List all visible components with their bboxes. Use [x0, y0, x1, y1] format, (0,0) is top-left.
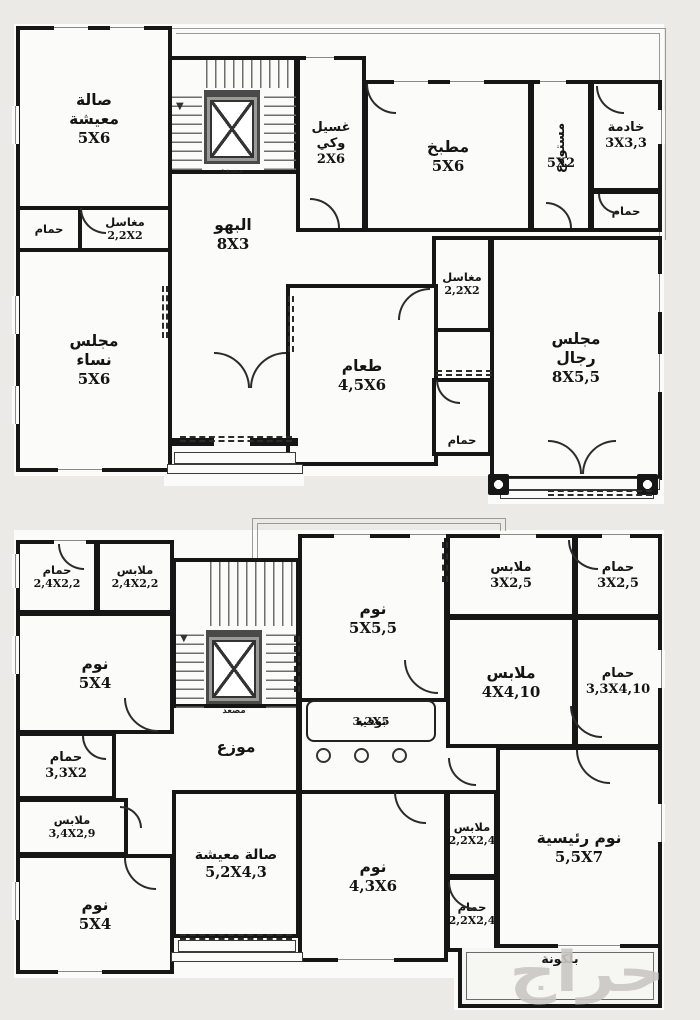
window: [602, 531, 630, 538]
bedroom-2-dims: 5X4: [79, 916, 112, 933]
hall-women-opening: [162, 286, 168, 338]
closet-d-dims: 4X4,10: [482, 684, 541, 701]
living-room-2-dims: 5,2X4,3: [205, 865, 267, 881]
window: [12, 882, 19, 920]
hall-porch-step: [167, 464, 303, 474]
window: [12, 296, 19, 334]
window: [658, 650, 665, 688]
buffet-dims: 3,2X5: [353, 714, 390, 728]
men-majlis-dims: 8X5,5: [552, 369, 600, 386]
bathroom-e-dims: 2,2X2,4: [449, 915, 496, 927]
buffet-wall: [296, 700, 302, 792]
men-majlis: مجلس رجال8X5,5: [490, 236, 662, 480]
bathroom-1-label: حمام: [35, 222, 64, 236]
window: [12, 386, 19, 424]
lobby-hall-label: البهو: [214, 216, 251, 235]
elevator-shaft: [206, 630, 262, 704]
living-room-label: صالة معيشة: [69, 91, 119, 129]
women-majlis: مجلس نساء5X6: [16, 248, 172, 472]
bathroom-b-label: حمام: [50, 750, 83, 766]
porch-step: [178, 940, 296, 952]
stair-treads: [206, 60, 294, 88]
closet-e-dims: 2,2X2,4: [449, 835, 496, 847]
buffet-counter: بوفيه3,2X5: [306, 700, 436, 742]
men-threshold: [548, 490, 652, 496]
closet-c-opening: [442, 542, 448, 582]
stair-treads: [210, 562, 296, 626]
balcony-window: [558, 942, 620, 949]
window: [54, 24, 88, 31]
porch-step: [171, 952, 303, 962]
bedroom-3-label: نوم: [360, 600, 387, 619]
living-room: صالة معيشة5X6: [16, 26, 172, 212]
bathroom-a-label: حمام: [43, 563, 72, 577]
bedroom-1-label: نوم: [82, 655, 109, 674]
closet-c-label: ملابس: [490, 560, 531, 576]
washbasins-2-label: مغاسل: [442, 270, 482, 284]
bedroom-3-dims: 5X5,5: [349, 620, 397, 637]
closet-e: ملابس2,2X2,4: [446, 790, 498, 878]
living-room-2-label: صالة معيشة: [195, 847, 277, 864]
washbasins-2-dims: 2,2X2: [444, 285, 479, 297]
elevator-icon: [212, 640, 256, 698]
entry-post: [488, 474, 509, 495]
bathroom-d-dims: 3,3X4,10: [586, 683, 650, 697]
closet-c-dims: 3X2,5: [490, 577, 532, 591]
maid-room-label: خادمة: [608, 120, 645, 136]
window: [394, 78, 428, 85]
women-majlis-label: مجلس نساء: [70, 332, 119, 370]
washbasins-1-dims: 2,2X2: [107, 230, 142, 242]
hall-dining-opening: [288, 296, 294, 352]
stair-treads: [266, 630, 296, 708]
floor-plan-image: حراج صالة معيشة5X6حماممغاسل2,2X2مجلس نسا…: [0, 0, 700, 1020]
bathroom-a: حمام2,4X2,2: [16, 540, 98, 614]
women-majlis-dims: 5X6: [78, 371, 111, 388]
maid-room-dims: 3X3,3: [605, 137, 647, 151]
window: [12, 106, 19, 144]
bathroom-2-label: حمام: [448, 433, 477, 447]
window: [658, 804, 665, 842]
window: [658, 110, 665, 144]
kitchen-dims: 5X6: [432, 158, 465, 175]
closet-b-label: ملابس: [54, 813, 90, 827]
stair-direction-arrow-icon: ▼: [176, 102, 184, 112]
elevator-label: مصعد: [204, 166, 260, 178]
buffet-stool: [354, 748, 369, 763]
window: [450, 78, 484, 85]
window: [334, 531, 370, 538]
living-2-threshold: [180, 934, 292, 940]
window: [410, 531, 446, 538]
dining-room-dims: 4,5X6: [338, 377, 386, 394]
buffet-stool: [316, 748, 331, 763]
bathroom-d-label: حمام: [602, 666, 635, 682]
distributor-opening: [294, 636, 300, 692]
balcony-label: بلكونة: [541, 951, 578, 966]
hall-porch-step: [174, 452, 296, 464]
storage-label: مستودع: [553, 123, 569, 173]
bedroom-4-label: نوم: [360, 858, 387, 877]
stair-direction-arrow-icon: ▼: [180, 634, 188, 644]
bedroom-2-label: نوم: [82, 896, 109, 915]
window: [306, 54, 334, 61]
closet-e-label: ملابس: [454, 820, 490, 834]
kitchen-label: مطبخ: [427, 138, 469, 157]
window: [338, 956, 394, 963]
bathroom-a-dims: 2,4X2,2: [34, 578, 81, 590]
men-majlis-label: مجلس رجال: [552, 330, 601, 368]
stair-treads: [264, 90, 296, 170]
lobby-hall: البهو8X3: [168, 172, 298, 444]
lobby-hall-dims: 8X3: [217, 236, 250, 253]
distributor-hall-label: موزع: [217, 738, 256, 757]
balcony: بلكونة: [458, 948, 662, 1008]
men-porch-step: [494, 478, 660, 490]
bathroom-1: حمام: [16, 206, 82, 252]
window: [12, 554, 19, 588]
bedroom-4-dims: 4,3X6: [349, 878, 397, 895]
washbasins-2: مغاسل2,2X2: [432, 236, 492, 332]
bathroom-b-dims: 3,3X2: [45, 767, 87, 781]
master-bedroom: نوم رئيسية5,5X7: [496, 746, 662, 948]
buffet-stool: [392, 748, 407, 763]
closet-a: ملابس2,4X2,2: [96, 540, 174, 614]
bathroom-c-label: حمام: [602, 560, 635, 576]
window: [58, 466, 102, 473]
window: [12, 636, 19, 674]
window: [500, 531, 536, 538]
window: [540, 78, 566, 85]
window: [656, 274, 663, 312]
window: [54, 537, 86, 544]
window: [58, 968, 102, 975]
master-bedroom-dims: 5,5X7: [555, 849, 603, 866]
closet-c: ملابس3X2,5: [446, 534, 576, 618]
window: [110, 24, 144, 31]
elevator-icon: [210, 100, 254, 158]
window: [656, 354, 663, 392]
bedroom-1-dims: 5X4: [79, 675, 112, 692]
living-room-2: صالة معيشة5,2X4,3: [172, 790, 300, 938]
laundry-ironing-dims: 2X6: [317, 153, 345, 167]
closet-b: ملابس3,4X2,9: [16, 798, 128, 856]
closet-b-dims: 3,4X2,9: [49, 828, 96, 840]
hall-threshold: [180, 436, 292, 442]
washbasin-opening: [436, 370, 492, 376]
dining-room-label: طعام: [342, 357, 383, 376]
laundry-ironing-label: غسيل وكي: [311, 120, 350, 152]
master-bedroom-label: نوم رئيسية: [537, 829, 622, 848]
closet-a-label: ملابس: [117, 563, 153, 577]
washbasins-1-label: مغاسل: [105, 215, 145, 229]
closet-a-dims: 2,4X2,2: [112, 578, 159, 590]
elevator-label: مصعد: [206, 706, 262, 718]
closet-d: ملابس4X4,10: [446, 616, 576, 748]
bathroom-c-dims: 3X2,5: [597, 577, 639, 591]
closet-d-label: ملابس: [486, 664, 535, 683]
elevator-shaft: [204, 90, 260, 164]
living-room-dims: 5X6: [78, 130, 111, 147]
